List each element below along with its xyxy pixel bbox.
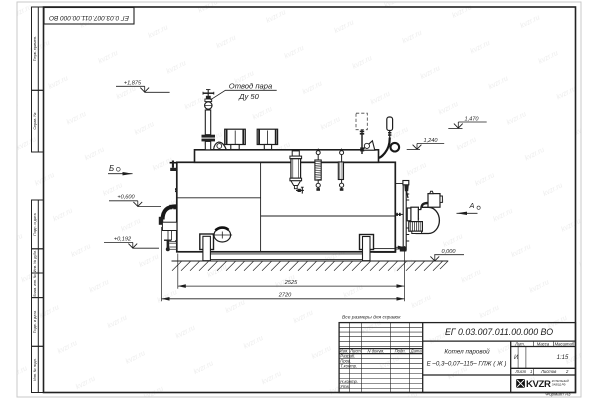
svg-text:1,240: 1,240 xyxy=(424,138,439,144)
svg-text:ЕГ 0.03.007.011.00.000 ВО: ЕГ 0.03.007.011.00.000 ВО xyxy=(49,14,129,21)
svg-text:Инв. № подл.: Инв. № подл. xyxy=(33,358,37,380)
svg-text:+0,600: +0,600 xyxy=(117,195,135,201)
svg-text:Е –0,3–0,07–115– ГЛЖ ( Ж ): Е –0,3–0,07–115– ГЛЖ ( Ж ) xyxy=(427,361,507,368)
svg-text:2720: 2720 xyxy=(278,292,292,298)
svg-text:+1,875: +1,875 xyxy=(124,80,142,86)
svg-text:Подп.: Подп. xyxy=(395,349,406,354)
svg-text:Взам. инв. №: Взам. инв. № xyxy=(33,274,37,296)
svg-text:А: А xyxy=(469,201,475,210)
svg-text:КОТЕЛЬНЫЙ: КОТЕЛЬНЫЙ xyxy=(552,379,569,383)
svg-text:Утв.: Утв. xyxy=(340,384,350,389)
svg-text:Масштаб: Масштаб xyxy=(555,341,575,346)
svg-text:Т.контр.: Т.контр. xyxy=(340,364,357,369)
svg-text:0,000: 0,000 xyxy=(442,249,457,255)
svg-text:Отвод пара: Отвод пара xyxy=(229,81,272,90)
svg-text:Дата: Дата xyxy=(410,349,423,354)
svg-text:Листов: Листов xyxy=(540,369,557,374)
svg-text:1:15: 1:15 xyxy=(557,355,569,361)
svg-text:И: И xyxy=(514,355,519,361)
svg-text:+0,192: +0,192 xyxy=(114,237,132,243)
svg-text:Лист: Лист xyxy=(515,369,527,374)
svg-text:Б: Б xyxy=(109,164,114,173)
svg-text:Подп. и дата: Подп. и дата xyxy=(33,212,37,235)
svg-text:Ду 50: Ду 50 xyxy=(238,92,260,101)
svg-text:2525: 2525 xyxy=(284,280,298,286)
svg-text:ЕГ 0.03.007.011.00.000 ВО: ЕГ 0.03.007.011.00.000 ВО xyxy=(445,327,553,337)
svg-text:Лит.: Лит. xyxy=(514,341,525,346)
svg-text:KVZR: KVZR xyxy=(526,379,551,390)
svg-text:1: 1 xyxy=(530,369,532,374)
svg-text:1,470: 1,470 xyxy=(465,116,480,122)
svg-text:Котел паровой: Котел паровой xyxy=(444,348,490,356)
svg-text:Подп. и дата: Подп. и дата xyxy=(33,310,37,333)
svg-text:Масса: Масса xyxy=(537,341,550,346)
svg-text:Все размеры для справок: Все размеры для справок xyxy=(342,315,401,321)
svg-text:N докум.: N докум. xyxy=(368,349,385,354)
svg-text:Инв. № дубл.: Инв. № дубл. xyxy=(33,250,37,272)
svg-text:Формат А3: Формат А3 xyxy=(545,391,571,396)
svg-text:Перв. примен.: Перв. примен. xyxy=(33,36,37,61)
svg-text:ЗАВОД РФ: ЗАВОД РФ xyxy=(552,383,567,387)
svg-text:Справ. №: Справ. № xyxy=(33,112,37,129)
